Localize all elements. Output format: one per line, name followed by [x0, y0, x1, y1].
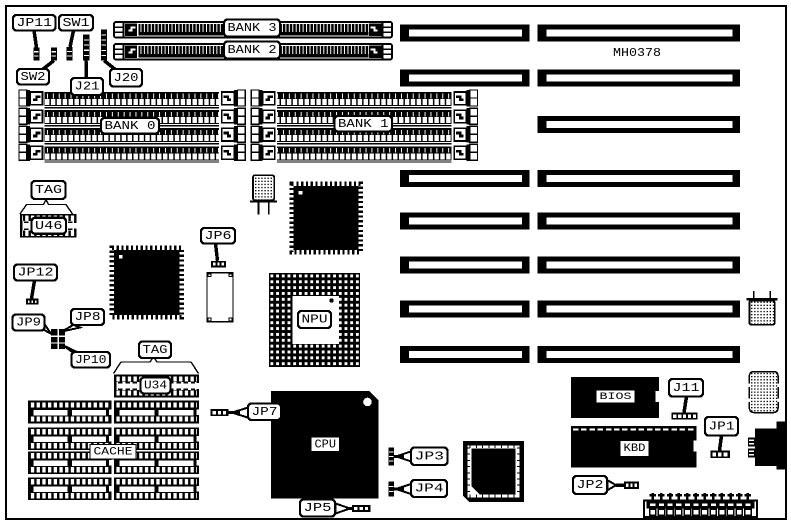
svg-text:JP10: JP10	[75, 354, 107, 367]
svg-text:JP3: JP3	[415, 450, 445, 463]
svg-text:JP8: JP8	[75, 311, 101, 324]
svg-text:BANK 3: BANK 3	[228, 22, 277, 35]
svg-text:BANK 2: BANK 2	[228, 44, 277, 57]
svg-text:JP2: JP2	[577, 479, 604, 492]
svg-text:U34: U34	[144, 380, 167, 393]
svg-text:CACHE: CACHE	[94, 446, 133, 458]
svg-text:BIOS: BIOS	[600, 391, 632, 403]
svg-text:JP11: JP11	[17, 17, 53, 30]
svg-text:J20: J20	[114, 72, 139, 85]
svg-text:JP4: JP4	[415, 483, 444, 496]
svg-text:TAG: TAG	[35, 184, 62, 197]
svg-text:J21: J21	[75, 81, 100, 94]
svg-text:MH0378: MH0378	[613, 47, 661, 60]
svg-text:BANK 0: BANK 0	[105, 120, 156, 133]
svg-text:SW1: SW1	[63, 17, 90, 30]
svg-text:JP12: JP12	[18, 267, 54, 280]
svg-text:U46: U46	[35, 220, 63, 233]
svg-text:JP9: JP9	[16, 317, 41, 330]
svg-text:JP7: JP7	[252, 406, 278, 419]
svg-text:BANK 1: BANK 1	[338, 118, 389, 131]
svg-text:SW2: SW2	[21, 71, 46, 84]
svg-text:JP1: JP1	[709, 420, 735, 433]
svg-text:TAG: TAG	[143, 344, 168, 357]
svg-text:JP6: JP6	[205, 230, 232, 243]
svg-text:J11: J11	[673, 382, 700, 395]
svg-text:NPU: NPU	[302, 314, 328, 327]
svg-text:CPU: CPU	[315, 438, 337, 451]
svg-text:KBD: KBD	[624, 443, 646, 455]
svg-text:JP5: JP5	[304, 502, 332, 515]
